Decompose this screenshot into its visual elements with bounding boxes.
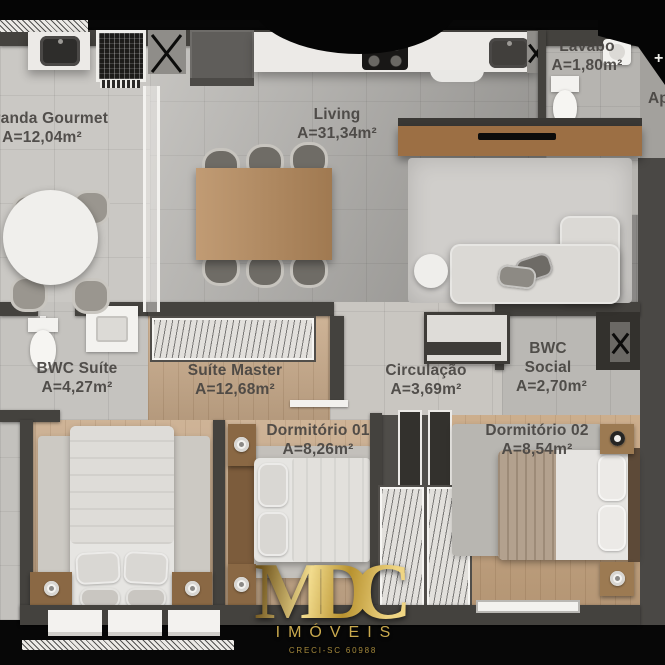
room-area: A=8,54m²: [485, 441, 588, 460]
pillow: [598, 505, 626, 551]
room-area: A=12,04m²: [0, 129, 108, 148]
varanda-round-table: [3, 190, 98, 285]
lavabo-left-wall: [538, 30, 546, 130]
suite-master-duvet: [70, 426, 174, 544]
room-area: A=31,34m²: [297, 125, 377, 144]
dining-table: [196, 168, 332, 260]
room-label-bwc-social: BWC Social A=2,70m²: [516, 340, 580, 397]
dormitorio2-window: [476, 600, 580, 613]
wall: [213, 420, 225, 620]
lamp: [234, 437, 249, 452]
varanda-chair: [72, 278, 110, 314]
room-name: Dormitório 02: [485, 422, 588, 441]
room-name: BWC Suíte: [36, 360, 117, 379]
counter-basin-bump: [430, 70, 484, 82]
room-name: Living: [297, 106, 377, 125]
room-name: BWC Social: [516, 340, 580, 378]
pillow: [258, 463, 288, 507]
vent-hatch-strip: [0, 20, 88, 32]
room-label-dormitorio2: Dormitório 02 A=8,54m²: [485, 422, 588, 460]
room-area: A=4,27m²: [36, 379, 117, 398]
shaft-x-icon: [610, 322, 630, 362]
top-strip: [0, 0, 665, 20]
room-label-suite-master: Suíte Master A=12,68m²: [188, 362, 283, 400]
left-edge-floor: [0, 420, 20, 620]
room-name: Suíte Master: [188, 362, 283, 381]
logo-creci: CRECI-SC 60988: [254, 646, 411, 655]
kitchen-sink-right: [489, 38, 529, 68]
room-area: A=2,70m²: [516, 378, 580, 397]
fridge: [190, 30, 254, 86]
grill-grate: [100, 80, 140, 88]
glass-door: [143, 86, 160, 312]
drawer-unit: [108, 610, 162, 636]
dormitorio2-blanket: [498, 450, 556, 560]
floorplan-render: Varanda Gourmet A=12,04m² Living A=31,34…: [0, 0, 665, 665]
lamp: [234, 577, 249, 592]
wall: [330, 316, 344, 402]
side-pouf: [414, 254, 448, 288]
circulacao-cabinet: [424, 312, 510, 364]
room-area: A=3,69m²: [385, 381, 466, 400]
room-area: A=1,80m²: [552, 57, 623, 76]
bwc-suite-basin: [96, 316, 128, 342]
room-name: Varanda Gourmet: [0, 110, 108, 129]
drawer-unit: [168, 610, 220, 636]
room-label-living: Living A=31,34m²: [297, 106, 377, 144]
room-label-circulacao: Circulação A=3,69m²: [385, 362, 466, 400]
door-leaf: [428, 410, 452, 494]
room-name: Lavabo: [552, 38, 623, 57]
door-leaf: [398, 410, 422, 494]
room-label-varanda: Varanda Gourmet A=12,04m²: [0, 110, 108, 148]
agency-logo: MDC IMÓVEIS CRECI-SC 60988: [254, 556, 411, 655]
pillow: [75, 551, 121, 585]
logo-initials: MDC: [254, 556, 411, 628]
pillow: [123, 551, 169, 585]
room-area: A=8,26m²: [266, 441, 369, 460]
tv-console: [398, 126, 642, 156]
grill-appliance: [96, 30, 146, 82]
shaft-x-icon: [148, 30, 186, 74]
right-wall: [638, 158, 665, 625]
kitchen-sink-left: [40, 36, 80, 66]
plus-icon: +: [654, 50, 663, 68]
room-name: Dormitório 01: [266, 422, 369, 441]
bottom-hatch-strip: [22, 640, 234, 650]
room-label-cutoff: Ap: [648, 90, 665, 108]
drawer-unit: [48, 610, 102, 636]
room-label-dormitorio1: Dormitório 01 A=8,26m²: [266, 422, 369, 460]
dormitorio1-duvet: [292, 458, 370, 562]
pillow: [598, 455, 626, 501]
room-area: A=12,68m²: [188, 381, 283, 400]
room-label-lavabo: Lavabo A=1,80m²: [552, 38, 623, 76]
wall: [148, 302, 334, 316]
lamp: [185, 581, 200, 596]
suite-master-wardrobe: [152, 318, 314, 360]
lamp: [44, 581, 59, 596]
circulacao-cabinet-shelf: [427, 342, 501, 355]
tv: [478, 133, 556, 140]
sofa-pillow: [497, 264, 537, 290]
room-name: Circulação: [385, 362, 466, 381]
lamp: [610, 571, 625, 586]
suite-master-door: [290, 400, 348, 407]
room-label-bwc-suite: BWC Suíte A=4,27m²: [36, 360, 117, 398]
dormitorio2-headboard: [628, 448, 640, 562]
lamp: [610, 431, 625, 446]
